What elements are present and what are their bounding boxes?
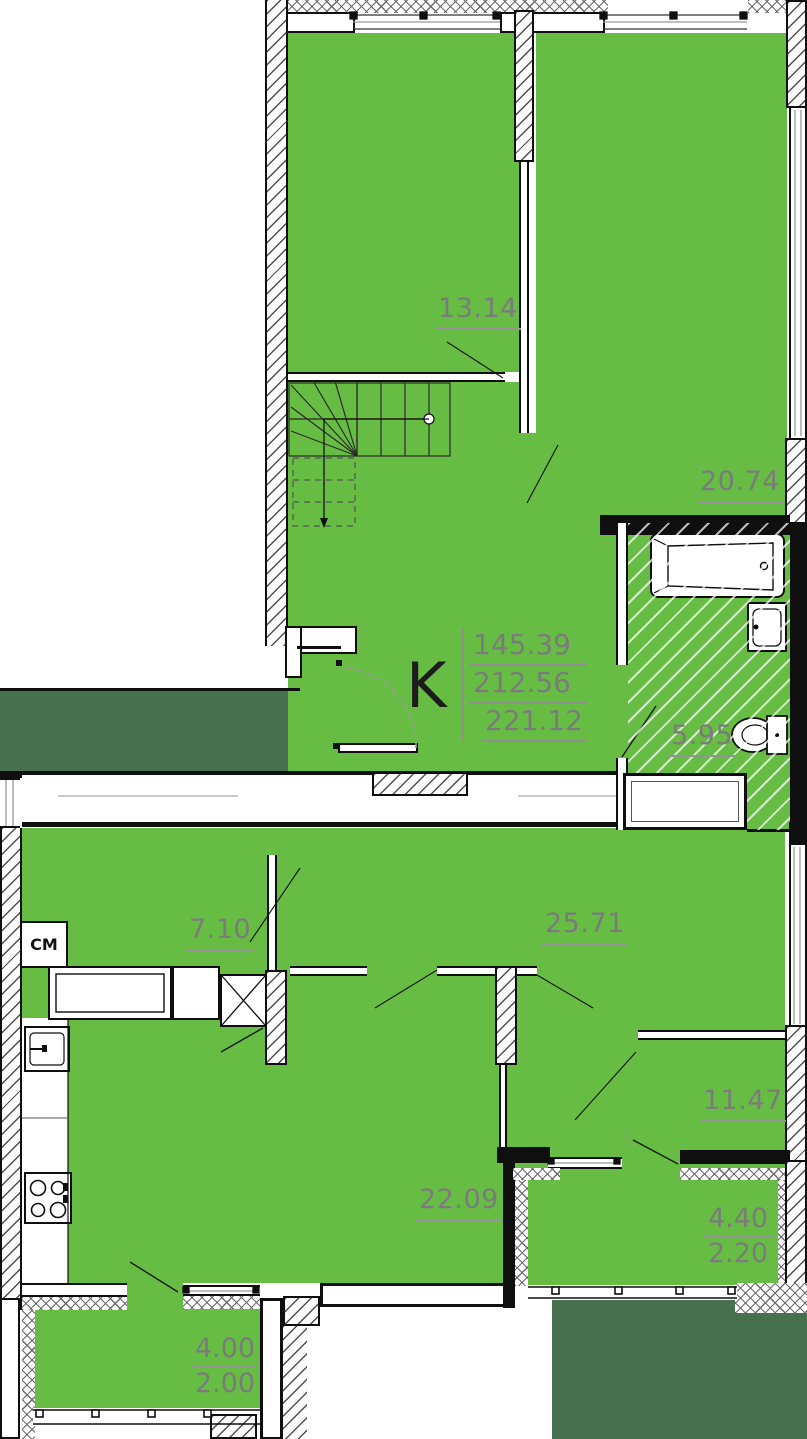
exterior-wall-right-bathroom — [790, 523, 807, 845]
corridor-partition — [267, 855, 277, 970]
window-right-lower — [789, 845, 807, 1025]
room-area-value: 25.71 — [542, 908, 628, 945]
balcony-left-area-label: 4.00 2.00 — [192, 1333, 258, 1401]
wall-stub-hatch — [283, 1296, 320, 1326]
facade-wall-top-right — [748, 0, 790, 13]
outside-strip-top-line — [0, 688, 300, 691]
balcony-right-corner-wall — [497, 1147, 550, 1163]
partition-25-71-stub — [517, 966, 537, 976]
room-20-74-fill — [536, 33, 787, 523]
balcony-left-corner-hatch — [210, 1414, 257, 1439]
area-summary-table: 145.39 212.56 221.12 — [462, 628, 587, 742]
room-area-value: 13.14 — [435, 293, 521, 330]
central-pier — [495, 966, 517, 1065]
bathroom-left-wall-upper — [616, 523, 628, 665]
balcony-area-full: 4.40 — [703, 1203, 773, 1238]
window-left-wing — [0, 778, 20, 828]
south-wall-corner — [503, 1283, 515, 1308]
balcony-right-parapet-ne — [680, 1168, 785, 1180]
partition-25-71-11-47 — [638, 1030, 785, 1040]
floor-plan: CM — [0, 0, 807, 1439]
window-balcony-left — [183, 1285, 260, 1296]
room-area-label-5-95: 5.95 — [668, 722, 736, 749]
partition-7-10-west — [290, 966, 367, 976]
area-summary-total: 221.12 — [481, 704, 587, 742]
exterior-hatch-stub — [283, 1326, 307, 1439]
room-area-label-7-10: 7.10 — [186, 916, 254, 943]
area-summary-apartment: 212.56 — [469, 666, 587, 704]
balcony-right-railing-band — [528, 1285, 737, 1300]
room-11-47-south-wall — [680, 1150, 790, 1164]
stove-box — [24, 1172, 72, 1224]
closet-box — [623, 773, 747, 830]
room-area-value: 20.74 — [697, 466, 783, 503]
window-right-upper — [789, 108, 807, 438]
closet-inner-line — [631, 781, 739, 822]
area-summary-living: 145.39 — [469, 628, 587, 666]
balcony-area-reduced: 2.00 — [192, 1368, 258, 1401]
room-area-label-20-74: 20.74 — [697, 468, 783, 495]
balcony-left-parapet-nw — [22, 1297, 127, 1310]
exterior-wall-left-upper — [265, 0, 288, 646]
balcony-left-door-fill — [127, 1283, 183, 1311]
balcony-area-reduced: 2.20 — [703, 1238, 773, 1271]
kitchen-sink-box — [24, 1026, 70, 1072]
washing-machine-label: CM — [30, 935, 58, 954]
balcony-left-parapet-ne — [183, 1296, 260, 1309]
entrance-door-leaf — [338, 743, 418, 753]
entrance-step-side — [285, 626, 302, 678]
partition-opening-fill — [519, 433, 536, 523]
exterior-wall-left-lower — [0, 828, 22, 1310]
balcony-right-parapet-w — [515, 1180, 528, 1286]
balcony-right-parapet-corner — [735, 1283, 807, 1313]
left-wall-cap — [0, 771, 22, 778]
kitchen-zone-letter: K — [406, 655, 447, 717]
room-area-label-13-14: 13.14 — [435, 295, 521, 322]
right-wall-cap — [789, 822, 807, 845]
corridor-pier — [265, 970, 287, 1065]
room-area-value: 11.47 — [700, 1085, 786, 1122]
balcony-right-area-label: 4.40 2.20 — [703, 1203, 773, 1271]
washing-machine-box: CM — [20, 921, 68, 968]
exterior-pier-balcony-right — [785, 1160, 807, 1285]
partition-7-10-east — [437, 966, 497, 976]
stair-top-wall — [288, 372, 505, 382]
entrance-lintel-line — [297, 646, 341, 649]
counter-segment — [172, 966, 220, 1020]
pier-top-middle — [514, 10, 534, 162]
balcony-right-parapet-nw — [513, 1168, 560, 1180]
pier-top-right — [786, 0, 807, 108]
entrance-lintel-bar — [372, 772, 468, 796]
pier-right-lower — [785, 1025, 807, 1165]
room-area-value: 22.09 — [416, 1184, 502, 1221]
corridor-top-wall-line — [0, 771, 618, 775]
pier-right-middle — [785, 438, 807, 524]
outside-area-bottom-right — [552, 1298, 807, 1439]
left-wall-bottom — [0, 1298, 20, 1439]
balcony-left-east-wall — [260, 1298, 283, 1439]
room-area-label-25-71: 25.71 — [542, 910, 628, 937]
balcony-area-full: 4.00 — [192, 1333, 258, 1368]
room-area-value: 7.10 — [186, 914, 254, 951]
kitchen-south-wall — [22, 1283, 127, 1297]
cabinet-x-box — [220, 974, 267, 1027]
lower-wing-top-wall-line — [22, 822, 623, 827]
partition-22-09-25-71 — [499, 1065, 507, 1147]
south-wall-middle — [320, 1283, 513, 1307]
room-area-value: 5.95 — [668, 720, 736, 757]
window-sill-top-left — [285, 12, 355, 33]
bathroom-door-opening-fill — [616, 665, 628, 758]
wardrobe-counter — [48, 966, 172, 1020]
room-area-label-22-09: 22.09 — [416, 1186, 502, 1213]
room-area-label-11-47: 11.47 — [700, 1087, 786, 1114]
